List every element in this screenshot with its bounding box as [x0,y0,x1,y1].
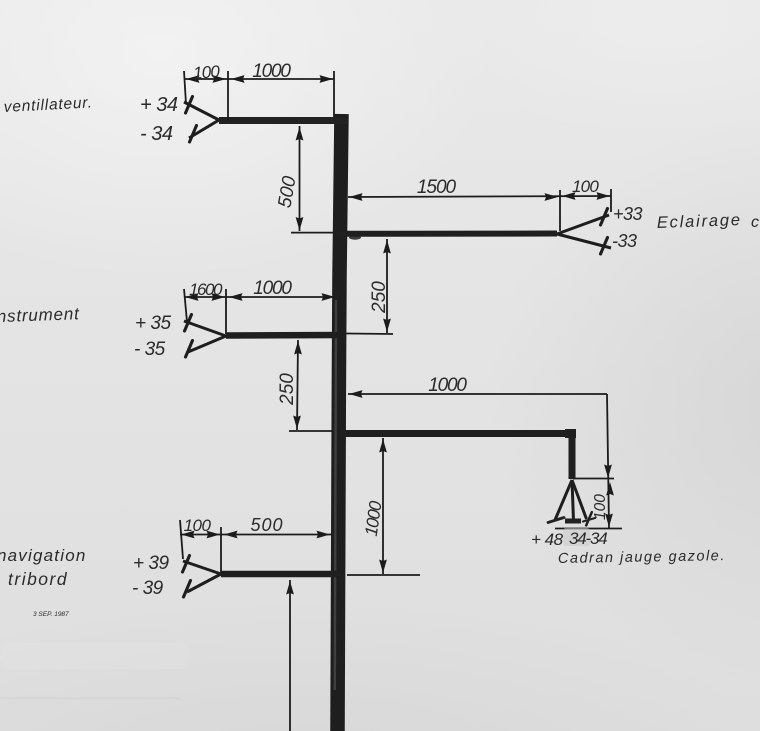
svg-text:ventillateur.: ventillateur. [3,94,93,116]
svg-text:+ 48: + 48 [531,530,564,549]
svg-text:100: 100 [572,177,599,196]
svg-text:Eclairage: Eclairage [657,211,743,232]
svg-text:1000: 1000 [361,499,386,537]
svg-text:100: 100 [592,494,609,520]
svg-text:1000: 1000 [428,375,467,396]
svg-text:+ 34: + 34 [140,94,178,116]
svg-text:- 39: - 39 [132,578,164,599]
svg-text:tribord: tribord [8,569,68,589]
svg-text:100: 100 [184,516,212,535]
svg-text:navigation: navigation [0,546,87,565]
svg-text:+33: +33 [613,204,643,224]
svg-text:500: 500 [250,515,283,535]
svg-text:1000: 1000 [252,61,291,82]
svg-text:+ 39: + 39 [133,553,169,574]
svg-text:Cadran jauge gazole.: Cadran jauge gazole. [558,548,726,567]
svg-text:250: 250 [277,373,298,406]
svg-text:1500: 1500 [417,177,457,198]
svg-text:-33: -33 [612,231,637,251]
svg-text:100: 100 [192,62,221,83]
svg-text:250: 250 [369,281,390,314]
svg-text:- 34: - 34 [140,123,173,145]
svg-text:34-34: 34-34 [569,529,607,548]
svg-text:- 35: - 35 [134,339,166,360]
svg-text:c: c [751,214,759,231]
svg-text:1000: 1000 [253,278,292,299]
svg-text:+ 35: + 35 [135,313,171,334]
svg-text:1600: 1600 [189,280,223,299]
svg-text:500: 500 [274,174,300,209]
svg-text:nstrument: nstrument [0,304,80,326]
svg-text:3 SEP. 1987: 3 SEP. 1987 [33,611,69,618]
